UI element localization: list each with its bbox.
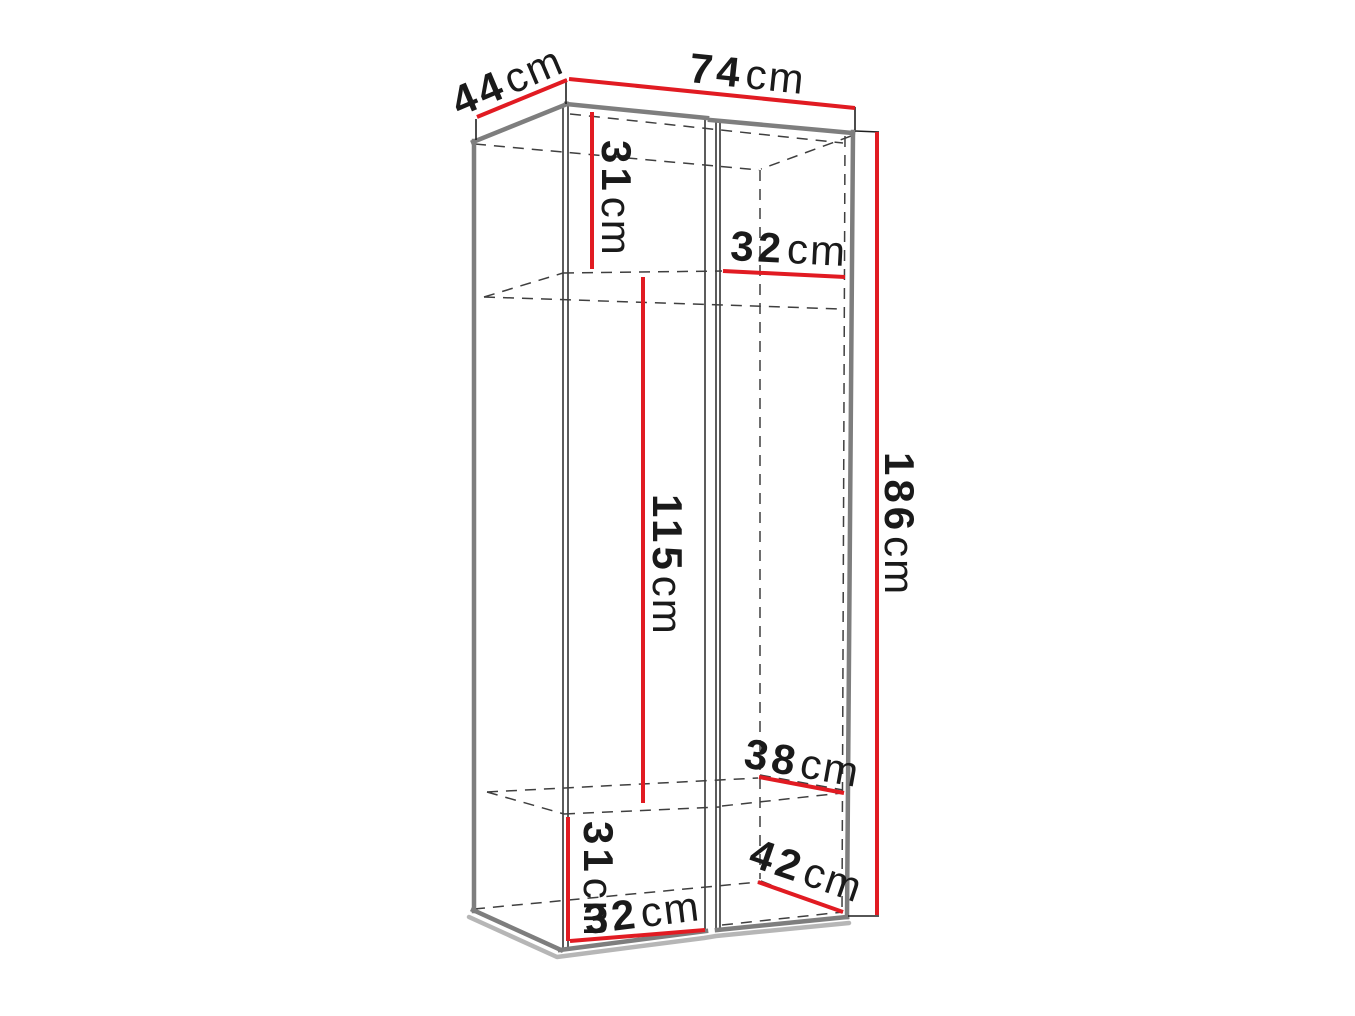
- dim-label-32cm-top: 32cm: [729, 222, 848, 275]
- dim-label-31cm-top: 31cm: [593, 140, 640, 257]
- wardrobe-dimension-diagram: 44cm 74cm 31cm 32cm 115cm 186cm 38cm 31c…: [0, 0, 1355, 1016]
- lower-shelf-front-edge-right: [722, 793, 842, 806]
- dim-label-186cm: 186cm: [876, 452, 923, 596]
- tick-186-top: [855, 131, 879, 132]
- upper-shelf-front-edge: [563, 271, 722, 273]
- top-right-depth-edge: [761, 136, 851, 169]
- lower-shelf-front-edge: [564, 807, 720, 814]
- edge-top-front-left: [566, 104, 707, 118]
- upper-shelf-back-edge: [484, 297, 842, 309]
- upper-shelf-left-edge: [484, 273, 563, 297]
- dim-label-115cm: 115cm: [644, 494, 691, 636]
- edge-right-vertical: [847, 132, 853, 917]
- lower-shelf-left-edge: [487, 792, 564, 814]
- lower-shelf-back-edge: [487, 778, 758, 792]
- edge-bottom-left-diagonal: [473, 910, 561, 950]
- diagram-canvas: 44cm 74cm 31cm 32cm 115cm 186cm 38cm 31c…: [0, 0, 1355, 1016]
